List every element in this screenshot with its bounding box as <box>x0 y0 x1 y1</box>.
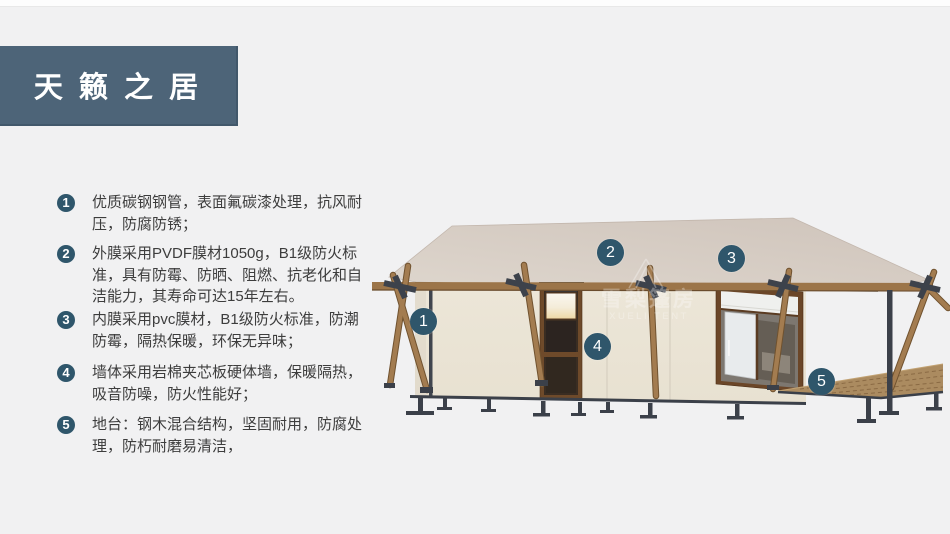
tent-illustration: 雪梨篷房 XUELI TENT <box>0 0 950 534</box>
diagram-badge-3: 3 <box>718 245 745 272</box>
glass-door-unit <box>716 286 803 392</box>
diagram-badge-2: 2 <box>597 239 624 266</box>
door-handle <box>728 340 730 356</box>
watermark-en: XUELI TENT <box>609 311 689 322</box>
corner-post-right <box>887 290 893 413</box>
slide: 天 籁 之 居 1 优质碳钢钢管，表面氟碳漆处理，抗风耐压，防腐防锈； 2 外膜… <box>0 0 950 534</box>
corner-post-left <box>429 283 433 397</box>
door-window <box>546 293 576 319</box>
diagram-badge-1: 1 <box>410 308 437 335</box>
diagram-badge-5: 5 <box>808 368 835 395</box>
watermark-cn: 雪梨篷房 <box>601 287 697 311</box>
diagram-badge-4: 4 <box>584 333 611 360</box>
